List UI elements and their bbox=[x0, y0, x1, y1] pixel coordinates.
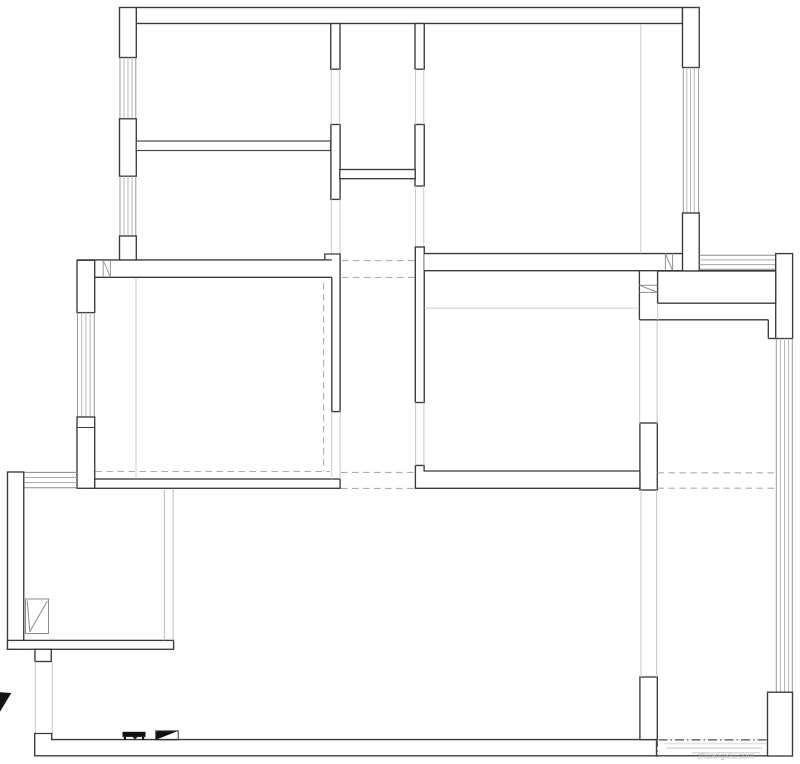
svg-text:zhuangxiu.com: zhuangxiu.com bbox=[697, 751, 754, 761]
